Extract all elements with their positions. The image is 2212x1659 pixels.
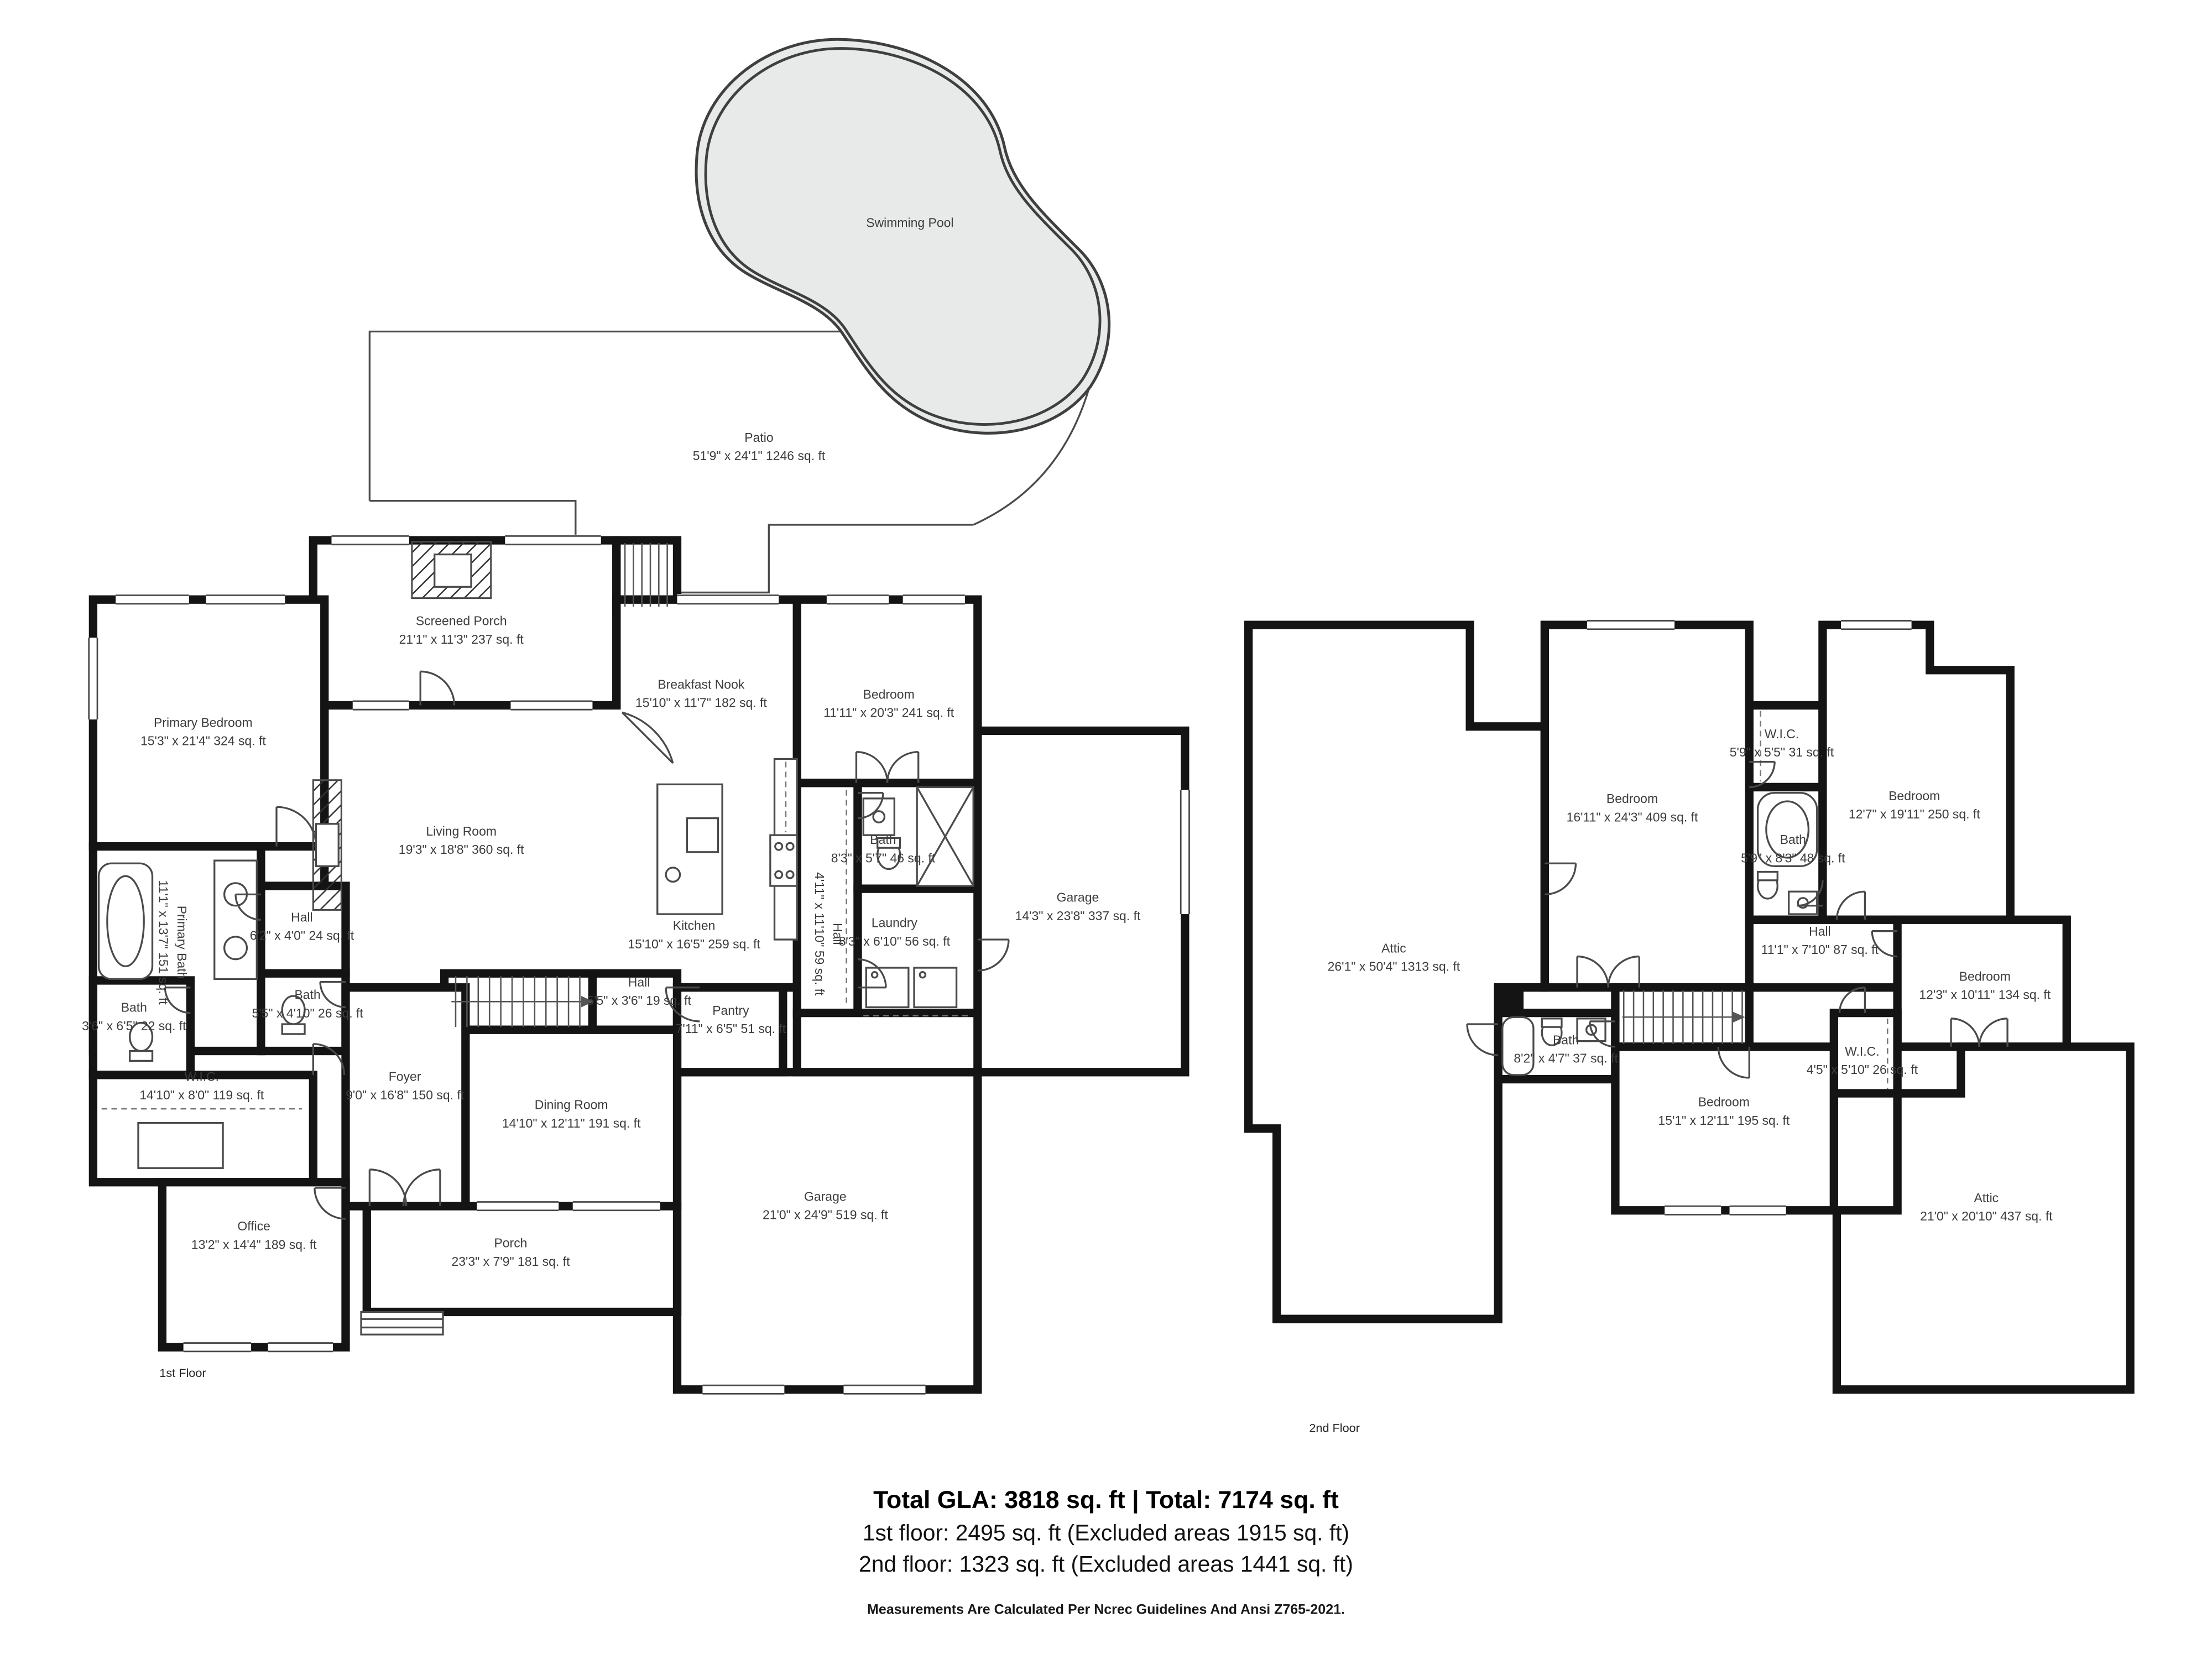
room-label-w-i-c-f1-16: W.I.C.14'10" x 8'0" 119 sq. ft bbox=[139, 1068, 264, 1104]
room-dims: 8'2" x 4'7" 37 sq. ft bbox=[1514, 1050, 1618, 1068]
pool-label: Swimming Pool bbox=[866, 216, 953, 230]
floor-plan-page: Swimming Pool Patio 51'9" x 24'1" 1246 s… bbox=[0, 0, 2212, 1659]
room-name: Hall bbox=[1761, 923, 1879, 941]
room-label-bath-f2-7: Bath8'2" x 4'7" 37 sq. ft bbox=[1514, 1031, 1618, 1067]
room-name: Bedroom bbox=[1567, 790, 1698, 808]
room-dims: 12'7" x 19'11" 250 sq. ft bbox=[1849, 806, 1980, 824]
room-name: Breakfast Nook bbox=[635, 676, 767, 695]
patio-label: Patio 51'9" x 24'1" 1246 sq. ft bbox=[693, 429, 826, 465]
room-label-hall-f1-10: Hall6'2" x 4'0" 24 sq. ft bbox=[250, 909, 354, 945]
room-label-foyer-f1-17: Foyer9'0" x 16'8" 150 sq. ft bbox=[346, 1068, 464, 1104]
room-name: Primary Bath bbox=[172, 880, 190, 1005]
room-label-screened-porch-f1-0: Screened Porch21'1" x 11'3" 237 sq. ft bbox=[399, 613, 524, 649]
room-dims: 11'11" x 20'3" 241 sq. ft bbox=[823, 704, 954, 722]
caption-floor2: 2nd Floor bbox=[1309, 1421, 1360, 1435]
room-name: Hall bbox=[587, 974, 691, 992]
room-dims: 26'1" x 50'4" 1313 sq. ft bbox=[1328, 958, 1460, 976]
room-dims: 5'9" x 8'3" 48 sq. ft bbox=[1741, 849, 1845, 868]
summary-total: Total GLA: 3818 sq. ft | Total: 7174 sq.… bbox=[0, 1485, 2212, 1515]
room-dims: 7'11" x 6'5" 51 sq. ft bbox=[676, 1020, 786, 1038]
room-dims: 16'11" x 24'3" 409 sq. ft bbox=[1567, 808, 1698, 827]
room-dims: 15'1" x 12'11" 195 sq. ft bbox=[1658, 1112, 1790, 1130]
room-name: Garage bbox=[763, 1188, 888, 1207]
room-label-bedroom-f2-6: Bedroom12'3" x 10'11" 134 sq. ft bbox=[1919, 968, 2051, 1004]
room-dims: 14'3" x 23'8" 337 sq. ft bbox=[1015, 907, 1141, 925]
room-label-kitchen-f1-9: Kitchen15'10" x 16'5" 259 sq. ft bbox=[628, 917, 760, 953]
room-dims: 23'3" x 7'9" 181 sq. ft bbox=[451, 1253, 570, 1271]
room-name: Foyer bbox=[346, 1068, 464, 1087]
room-dims: 15'3" x 21'4" 324 sq. ft bbox=[140, 732, 266, 750]
room-name: Bedroom bbox=[1849, 787, 1980, 806]
room-label-primary-bath-f1-11: Primary Bath11'1" x 13'7" 151 sq. ft bbox=[154, 880, 190, 1005]
room-name: Bath bbox=[82, 999, 186, 1018]
room-label-bath-f1-13: Bath3'6" x 6'5" 22 sq. ft bbox=[82, 999, 186, 1035]
room-dims: 4'11" x 11'10" 59 sq. ft bbox=[810, 872, 828, 995]
patio-name: Patio bbox=[693, 429, 826, 447]
summary-floor1: 1st floor: 2495 sq. ft (Excluded areas 1… bbox=[0, 1522, 2212, 1548]
room-dims: 21'1" x 11'3" 237 sq. ft bbox=[399, 630, 524, 649]
room-name: Attic bbox=[1920, 1190, 2053, 1208]
room-label-w-i-c-f2-2: W.I.C.5'9" x 5'5" 31 sq. ft bbox=[1730, 726, 1834, 761]
room-name: Pantry bbox=[676, 1002, 786, 1020]
room-label-w-i-c-f2-8: W.I.C.4'5" x 5'10" 26 sq. ft bbox=[1807, 1043, 1918, 1079]
room-label-dining-room-f1-18: Dining Room14'10" x 12'11" 191 sq. ft bbox=[502, 1097, 641, 1133]
room-label-bedroom-f2-9: Bedroom15'1" x 12'11" 195 sq. ft bbox=[1658, 1094, 1790, 1130]
room-name: Hall bbox=[250, 909, 354, 927]
room-dims: 14'10" x 8'0" 119 sq. ft bbox=[139, 1086, 264, 1104]
room-label-office-f1-19: Office13'2" x 14'4" 189 sq. ft bbox=[191, 1218, 317, 1254]
room-name: Dining Room bbox=[502, 1097, 641, 1115]
room-label-attic-f2-0: Attic26'1" x 50'4" 1313 sq. ft bbox=[1328, 940, 1460, 976]
room-name: Bedroom bbox=[1658, 1094, 1790, 1112]
room-dims: 8'3" x 6'10" 56 sq. ft bbox=[839, 932, 950, 951]
room-name: Primary Bedroom bbox=[140, 714, 266, 732]
room-dims: 4'5" x 5'10" 26 sq. ft bbox=[1807, 1061, 1918, 1079]
room-name: Bath bbox=[831, 831, 935, 849]
room-dims: 11'1" x 13'7" 151 sq. ft bbox=[154, 880, 173, 1005]
summary-floor2: 2nd floor: 1323 sq. ft (Excluded areas 1… bbox=[0, 1553, 2212, 1579]
room-label-bath-f2-4: Bath5'9" x 8'3" 48 sq. ft bbox=[1741, 831, 1845, 867]
room-label-bedroom-f2-3: Bedroom12'7" x 19'11" 250 sq. ft bbox=[1849, 787, 1980, 823]
room-name: Hall bbox=[828, 872, 846, 995]
room-dims: 15'10" x 16'5" 259 sq. ft bbox=[628, 935, 760, 953]
room-name: Porch bbox=[451, 1235, 570, 1253]
room-name: Bedroom bbox=[823, 686, 954, 704]
room-dims: 5'9" x 5'5" 31 sq. ft bbox=[1730, 743, 1834, 761]
room-dims: 6'2" x 4'0" 24 sq. ft bbox=[250, 927, 354, 945]
room-label-bath-f1-12: Bath5'5" x 4'10" 26 sq. ft bbox=[252, 987, 363, 1022]
caption-floor1: 1st Floor bbox=[159, 1365, 206, 1380]
room-name: Garage bbox=[1015, 889, 1141, 907]
room-name: Attic bbox=[1328, 940, 1460, 958]
room-dims: 15'10" x 11'7" 182 sq. ft bbox=[635, 694, 767, 712]
room-dims: 14'10" x 12'11" 191 sq. ft bbox=[502, 1114, 641, 1133]
room-label-primary-bedroom-f1-3: Primary Bedroom15'3" x 21'4" 324 sq. ft bbox=[140, 714, 266, 750]
room-label-porch-f1-20: Porch23'3" x 7'9" 181 sq. ft bbox=[451, 1235, 570, 1271]
room-name: W.I.C. bbox=[1730, 726, 1834, 744]
room-label-bedroom-f2-1: Bedroom16'11" x 24'3" 409 sq. ft bbox=[1567, 790, 1698, 826]
labels-layer: Swimming Pool Patio 51'9" x 24'1" 1246 s… bbox=[0, 0, 2212, 1659]
room-label-garage-f1-5: Garage14'3" x 23'8" 337 sq. ft bbox=[1015, 889, 1141, 925]
summary-disclaimer: Measurements Are Calculated Per Ncrec Gu… bbox=[0, 1603, 2212, 1618]
room-name: Laundry bbox=[839, 915, 950, 933]
room-name: Screened Porch bbox=[399, 613, 524, 631]
room-dims: 3'6" x 6'5" 22 sq. ft bbox=[82, 1017, 186, 1035]
room-label-garage-f1-21: Garage21'0" x 24'9" 519 sq. ft bbox=[763, 1188, 888, 1224]
room-label-pantry-f1-15: Pantry7'11" x 6'5" 51 sq. ft bbox=[676, 1002, 786, 1038]
room-name: Bath bbox=[252, 987, 363, 1005]
room-dims: 8'3" x 5'7" 46 sq. ft bbox=[831, 849, 935, 868]
patio-dims: 51'9" x 24'1" 1246 sq. ft bbox=[693, 447, 826, 466]
room-label-hall-f1-8: Hall4'11" x 11'10" 59 sq. ft bbox=[810, 872, 846, 995]
room-label-attic-f2-10: Attic21'0" x 20'10" 437 sq. ft bbox=[1920, 1190, 2053, 1225]
room-dims: 11'1" x 7'10" 87 sq. ft bbox=[1761, 941, 1879, 959]
room-dims: 9'0" x 16'8" 150 sq. ft bbox=[346, 1086, 464, 1104]
room-label-living-room-f1-4: Living Room19'3" x 18'8" 360 sq. ft bbox=[399, 823, 524, 859]
room-label-hall-f2-5: Hall11'1" x 7'10" 87 sq. ft bbox=[1761, 923, 1879, 959]
room-dims: 19'3" x 18'8" 360 sq. ft bbox=[399, 841, 524, 859]
room-name: Bedroom bbox=[1919, 968, 2051, 987]
room-name: Living Room bbox=[399, 823, 524, 841]
room-name: Bath bbox=[1741, 831, 1845, 849]
room-dims: 21'0" x 24'9" 519 sq. ft bbox=[763, 1206, 888, 1224]
room-dims: 21'0" x 20'10" 437 sq. ft bbox=[1920, 1208, 2053, 1226]
room-dims: 12'3" x 10'11" 134 sq. ft bbox=[1919, 986, 2051, 1004]
room-name: Kitchen bbox=[628, 917, 760, 936]
room-label-breakfast-nook-f1-1: Breakfast Nook15'10" x 11'7" 182 sq. ft bbox=[635, 676, 767, 712]
room-label-bath-f1-6: Bath8'3" x 5'7" 46 sq. ft bbox=[831, 831, 935, 867]
room-name: W.I.C. bbox=[1807, 1043, 1918, 1061]
room-name: Bath bbox=[1514, 1031, 1618, 1050]
room-label-bedroom-f1-2: Bedroom11'11" x 20'3" 241 sq. ft bbox=[823, 686, 954, 722]
room-label-laundry-f1-7: Laundry8'3" x 6'10" 56 sq. ft bbox=[839, 915, 950, 951]
room-dims: 13'2" x 14'4" 189 sq. ft bbox=[191, 1236, 317, 1254]
room-name: W.I.C. bbox=[139, 1068, 264, 1087]
room-dims: 5'5" x 4'10" 26 sq. ft bbox=[252, 1004, 363, 1022]
room-name: Office bbox=[191, 1218, 317, 1236]
